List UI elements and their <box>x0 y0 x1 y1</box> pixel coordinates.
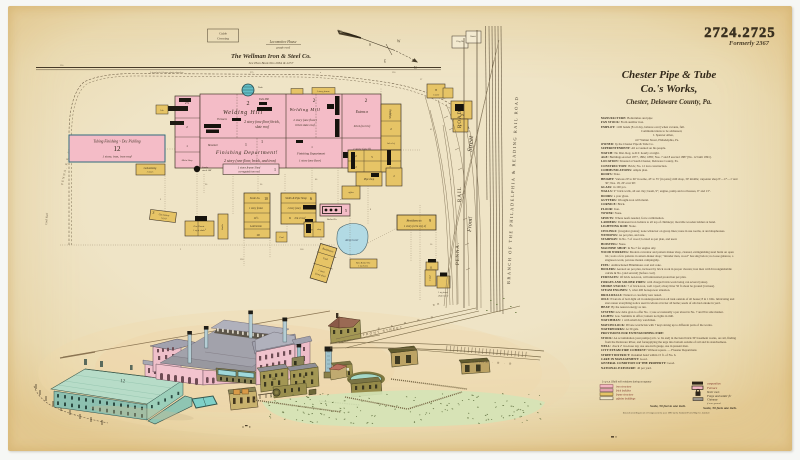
svg-text:100: 100 <box>300 249 304 251</box>
svg-text:Coal Yard: Coal Yard <box>44 212 49 225</box>
svg-text:1 sty fr.: 1 sty fr. <box>147 171 154 174</box>
svg-text:6: 6 <box>289 216 291 220</box>
svg-text:Boiler Ho.: Boiler Ho. <box>327 218 337 221</box>
svg-text:Finishing Department: Finishing Department <box>296 152 325 156</box>
svg-text:Reservoir: Reservoir <box>344 238 359 242</box>
svg-text:Tube Mill: Tube Mill <box>259 98 269 101</box>
svg-text:10: 10 <box>272 377 276 381</box>
svg-text:1 sty frame: 1 sty frame <box>358 265 368 268</box>
svg-text:50: 50 <box>260 184 263 186</box>
svg-text:New Boiler Ho: New Boiler Ho <box>355 262 371 265</box>
svg-text:Residences: Residences <box>405 219 422 223</box>
svg-text:Welding Mill: Welding Mill <box>290 107 321 112</box>
svg-text:Mchn Shop: Mchn Shop <box>181 159 194 162</box>
svg-text:S: S <box>369 43 371 47</box>
svg-text:Entered according to act of Co: Entered according to act of Congress in … <box>623 411 710 414</box>
svg-text:1: 1 <box>261 139 263 144</box>
svg-text:Stable: Stable <box>221 224 224 230</box>
svg-text:Scale, 50 feets one inch.: Scale, 50 feets one inch. <box>703 406 737 410</box>
svg-text:corrugated iron roof: corrugated iron roof <box>238 171 261 174</box>
svg-text:Smith & Pipe Shop: Smith & Pipe Shop <box>285 197 307 200</box>
svg-text:Finishing Department!: Finishing Department! <box>215 150 278 156</box>
svg-text:Gas Genrtr: Gas Genrtr <box>194 225 205 228</box>
svg-text:frick buildins: frick buildins <box>616 389 631 392</box>
svg-text:9: 9 <box>429 218 431 223</box>
svg-text:1 sty fr: 1 sty fr <box>429 275 432 281</box>
svg-text:Chimney: Chimney <box>707 398 718 402</box>
svg-text:Formerly 2367: Formerly 2367 <box>729 40 770 47</box>
svg-text:grade roof: grade roof <box>276 46 291 50</box>
svg-text:Locomotive House: Locomotive House <box>269 40 297 44</box>
svg-text:1 story (one floor): 1 story (one floor) <box>299 159 321 163</box>
svg-text:PENNA.: PENNA. <box>456 242 461 265</box>
svg-text:Lattrnnnnn: Lattrnnnnn <box>249 225 262 228</box>
svg-text:slate roof: slate roof <box>255 125 270 129</box>
svg-text:Furnace: Furnace <box>706 386 718 390</box>
svg-text:composition: composition <box>707 382 721 385</box>
svg-text:150: 150 <box>392 72 396 74</box>
svg-text:42: 42 <box>430 129 433 131</box>
svg-text:2: 2 <box>186 125 188 129</box>
svg-text:Co.'s Works,: Co.'s Works, <box>641 83 698 95</box>
svg-text:6: 6 <box>310 196 312 201</box>
svg-text:iron structure: iron structure <box>616 385 632 388</box>
svg-text:Chester, Delaware County, Pa.: Chester, Delaware County, Pa. <box>626 99 712 106</box>
svg-text:adjoins buildings: adjoins buildings <box>616 398 635 401</box>
svg-text:10: 10 <box>430 244 433 246</box>
svg-text:1 sty fr sheds: 1 sty fr sheds <box>193 229 205 232</box>
svg-text:Chester Pipe & Tube: Chester Pipe & Tube <box>622 69 717 81</box>
svg-text:See Plan Book Nos 2664 & 2257: See Plan Book Nos 2664 & 2257 <box>249 61 294 65</box>
svg-text:40: 40 <box>315 179 318 181</box>
svg-text:Scale ho.: Scale ho. <box>250 197 261 200</box>
svg-text:8: 8 <box>370 209 372 211</box>
svg-text:Scale, 50 feet to one inch.: Scale, 50 feet to one inch. <box>650 404 686 408</box>
svg-text:w: w <box>340 199 342 201</box>
svg-text:ROAD: ROAD <box>458 110 463 128</box>
svg-text:W: W <box>397 40 401 44</box>
svg-text:1 story brick & frame sheds al: 1 story brick & frame sheds along line <box>150 71 184 74</box>
svg-text:150: 150 <box>240 259 244 261</box>
svg-text:Welding Hill: Welding Hill <box>223 110 263 116</box>
svg-text:12: 12 <box>114 145 122 153</box>
svg-text:The Wellman Iron & Steel Co.: The Wellman Iron & Steel Co. <box>231 53 311 60</box>
svg-text:1 story frame: 1 story frame <box>249 207 264 210</box>
svg-text:brk sl roof: brk sl roof <box>295 217 307 220</box>
svg-text:Furnaces: Furnaces <box>216 118 227 121</box>
svg-text:brick slate roof: brick slate roof <box>295 123 315 127</box>
svg-text:11: 11 <box>430 266 433 270</box>
svg-text:2: 2 <box>247 101 250 107</box>
svg-text:E: E <box>384 60 387 64</box>
svg-text:150: 150 <box>60 65 64 67</box>
svg-text:Crossing: Crossing <box>217 37 229 41</box>
svg-text:1 sty br: 1 sty br <box>433 94 440 97</box>
svg-text:50: 50 <box>205 184 208 186</box>
svg-text:11½: 11½ <box>254 217 259 220</box>
svg-text:Tank: Tank <box>258 86 263 89</box>
svg-text:Shipping: Shipping <box>389 109 392 119</box>
svg-text:( s p s p ) Built with window: ( s p s p ) Built with windows during oc… <box>602 381 652 384</box>
svg-text:office: office <box>348 191 353 194</box>
svg-text:6: 6 <box>303 375 305 379</box>
svg-text:Watch: Watch <box>470 35 475 38</box>
svg-text:1 story frame Shed: 1 story frame Shed <box>238 166 261 170</box>
svg-text:2 story (one floor): 2 story (one floor) <box>293 118 316 122</box>
svg-text:o: o <box>320 72 322 74</box>
svg-text:10: 10 <box>256 233 260 237</box>
svg-text:R R: R R <box>432 302 440 307</box>
svg-text:3: 3 <box>160 199 162 201</box>
svg-text:5: 5 <box>345 208 347 213</box>
svg-text:if over ground: if over ground <box>707 402 721 405</box>
svg-text:Extens n: Extens n <box>355 110 368 114</box>
svg-text:Pipe shop: Pipe shop <box>363 178 375 181</box>
svg-text:brick (no hrs): brick (no hrs) <box>354 124 371 128</box>
svg-text:brk sl rf: brk sl rf <box>387 142 395 145</box>
svg-text:10: 10 <box>264 197 268 201</box>
svg-text:2: 2 <box>180 249 182 251</box>
svg-text:17: 17 <box>420 79 423 81</box>
svg-text:1 story (nrrn sty) of: 1 story (nrrn sty) of <box>404 225 427 228</box>
svg-text:275: 275 <box>250 72 254 74</box>
svg-text:Cable: Cable <box>219 32 228 36</box>
svg-text:N: N <box>414 66 417 70</box>
svg-text:1: 1 <box>245 143 247 147</box>
svg-text:1 story frame: 1 story frame <box>317 90 330 93</box>
svg-text:2724.2725: 2724.2725 <box>704 25 776 41</box>
svg-text:Bessemer: Bessemer <box>208 144 219 147</box>
svg-text:Flag Ho: Flag Ho <box>455 41 464 43</box>
svg-text:Lab: Lab <box>160 110 163 112</box>
svg-text:1: 1 <box>274 167 276 172</box>
svg-text:frame structure: frame structure <box>616 393 634 396</box>
svg-text:Front!: Front! <box>467 216 474 233</box>
svg-text:25: 25 <box>320 239 323 241</box>
svg-text:1 story (one): 1 story (one) <box>287 207 300 210</box>
svg-text:Coal: Coal <box>279 237 284 239</box>
svg-text:Galvanizing: Galvanizing <box>144 167 157 170</box>
svg-text:stack 140': stack 140' <box>202 169 212 172</box>
svg-text:BRANCH OF THE PHILADELPHIA & R: BRANCH OF THE PHILADELPHIA & READING RAI… <box>506 96 519 285</box>
svg-text:Tubing Finishing ~ Dec Picklin: Tubing Finishing ~ Dec Pickling <box>93 140 140 144</box>
svg-text:1 sty frame: 1 sty frame <box>438 291 448 294</box>
